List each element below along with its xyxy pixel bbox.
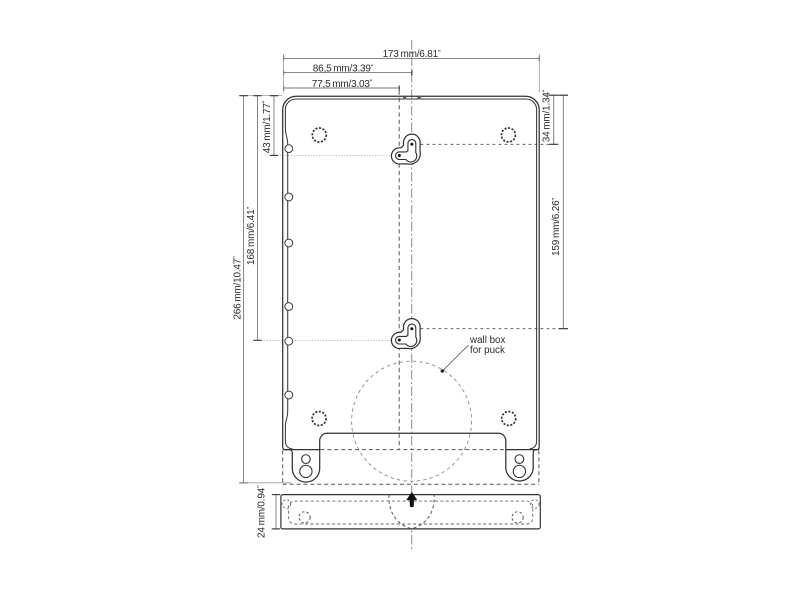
svg-text:34 mm/1.34": 34 mm/1.34" (540, 89, 552, 142)
svg-text:24 mm/0.94": 24 mm/0.94" (255, 485, 267, 538)
svg-text:266 mm/10.47": 266 mm/10.47" (231, 256, 243, 320)
svg-text:173 mm/6.81": 173 mm/6.81" (383, 48, 441, 60)
svg-text:77,5 mm/3.03": 77,5 mm/3.03" (312, 78, 373, 90)
svg-text:86,5 mm/3.39": 86,5 mm/3.39" (313, 62, 374, 74)
svg-text:for puck: for puck (470, 345, 505, 356)
svg-text:159 mm/6.26": 159 mm/6.26" (550, 198, 562, 256)
svg-text:43 mm/1.77": 43 mm/1.77" (261, 100, 273, 153)
svg-text:168 mm/6.41": 168 mm/6.41" (245, 207, 257, 265)
